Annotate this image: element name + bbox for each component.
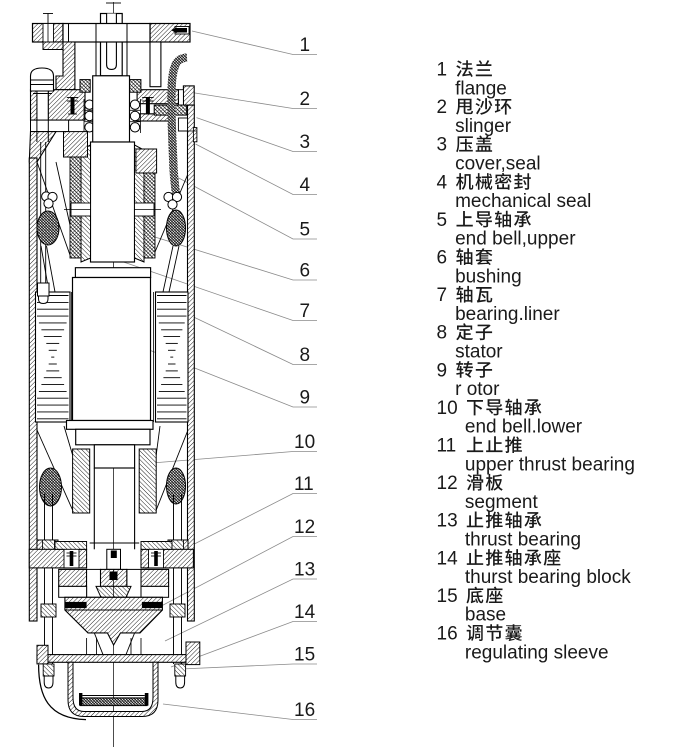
svg-text:4: 4: [437, 172, 448, 193]
svg-text:2: 2: [300, 89, 311, 110]
svg-text:end bell,upper: end bell,upper: [455, 229, 576, 250]
svg-text:6: 6: [437, 248, 448, 269]
svg-text:9: 9: [300, 388, 311, 409]
svg-text:upper thrust bearing: upper thrust bearing: [465, 454, 635, 475]
svg-text:5: 5: [300, 220, 311, 241]
svg-text:15: 15: [294, 645, 315, 666]
svg-text:bushing: bushing: [455, 266, 522, 287]
svg-text:3: 3: [300, 132, 311, 153]
svg-text:10: 10: [294, 432, 315, 453]
svg-text:segment: segment: [465, 492, 539, 513]
svg-text:6: 6: [300, 261, 311, 282]
svg-text:cover,seal: cover,seal: [455, 154, 541, 175]
svg-text:regulating sleeve: regulating sleeve: [465, 642, 609, 663]
svg-text:base: base: [465, 605, 506, 626]
svg-text:7: 7: [437, 285, 448, 306]
svg-text:13: 13: [294, 560, 315, 581]
svg-text:end bell.lower: end bell.lower: [465, 417, 583, 438]
svg-text:16: 16: [294, 700, 315, 721]
svg-text:16: 16: [437, 624, 458, 645]
svg-text:mechanical seal: mechanical seal: [455, 191, 591, 212]
svg-text:thurst bearing block: thurst bearing block: [465, 567, 631, 588]
svg-text:14: 14: [294, 602, 316, 623]
svg-text:7: 7: [300, 301, 311, 322]
svg-text:5: 5: [437, 210, 448, 231]
svg-text:11: 11: [437, 436, 457, 457]
svg-text:2: 2: [437, 97, 448, 118]
svg-text:15: 15: [437, 586, 458, 607]
svg-text:bearing.liner: bearing.liner: [455, 304, 560, 325]
svg-text:slinger: slinger: [455, 116, 512, 137]
svg-text:13: 13: [437, 511, 458, 532]
svg-text:9: 9: [437, 360, 448, 381]
svg-text:12: 12: [294, 517, 315, 538]
svg-text:14: 14: [437, 548, 459, 569]
svg-text:8: 8: [437, 323, 448, 344]
svg-text:thrust bearing: thrust bearing: [465, 530, 581, 551]
svg-text:1: 1: [437, 60, 448, 81]
svg-text:1: 1: [300, 35, 311, 56]
svg-text:8: 8: [300, 345, 311, 366]
svg-text:11: 11: [294, 474, 314, 495]
svg-text:stator: stator: [455, 342, 503, 363]
svg-text:4: 4: [300, 175, 311, 196]
svg-text:12: 12: [437, 473, 458, 494]
svg-text:3: 3: [437, 135, 448, 156]
svg-text:r otor: r otor: [455, 379, 500, 400]
svg-text:10: 10: [437, 398, 458, 419]
svg-text:flange: flange: [455, 78, 507, 99]
